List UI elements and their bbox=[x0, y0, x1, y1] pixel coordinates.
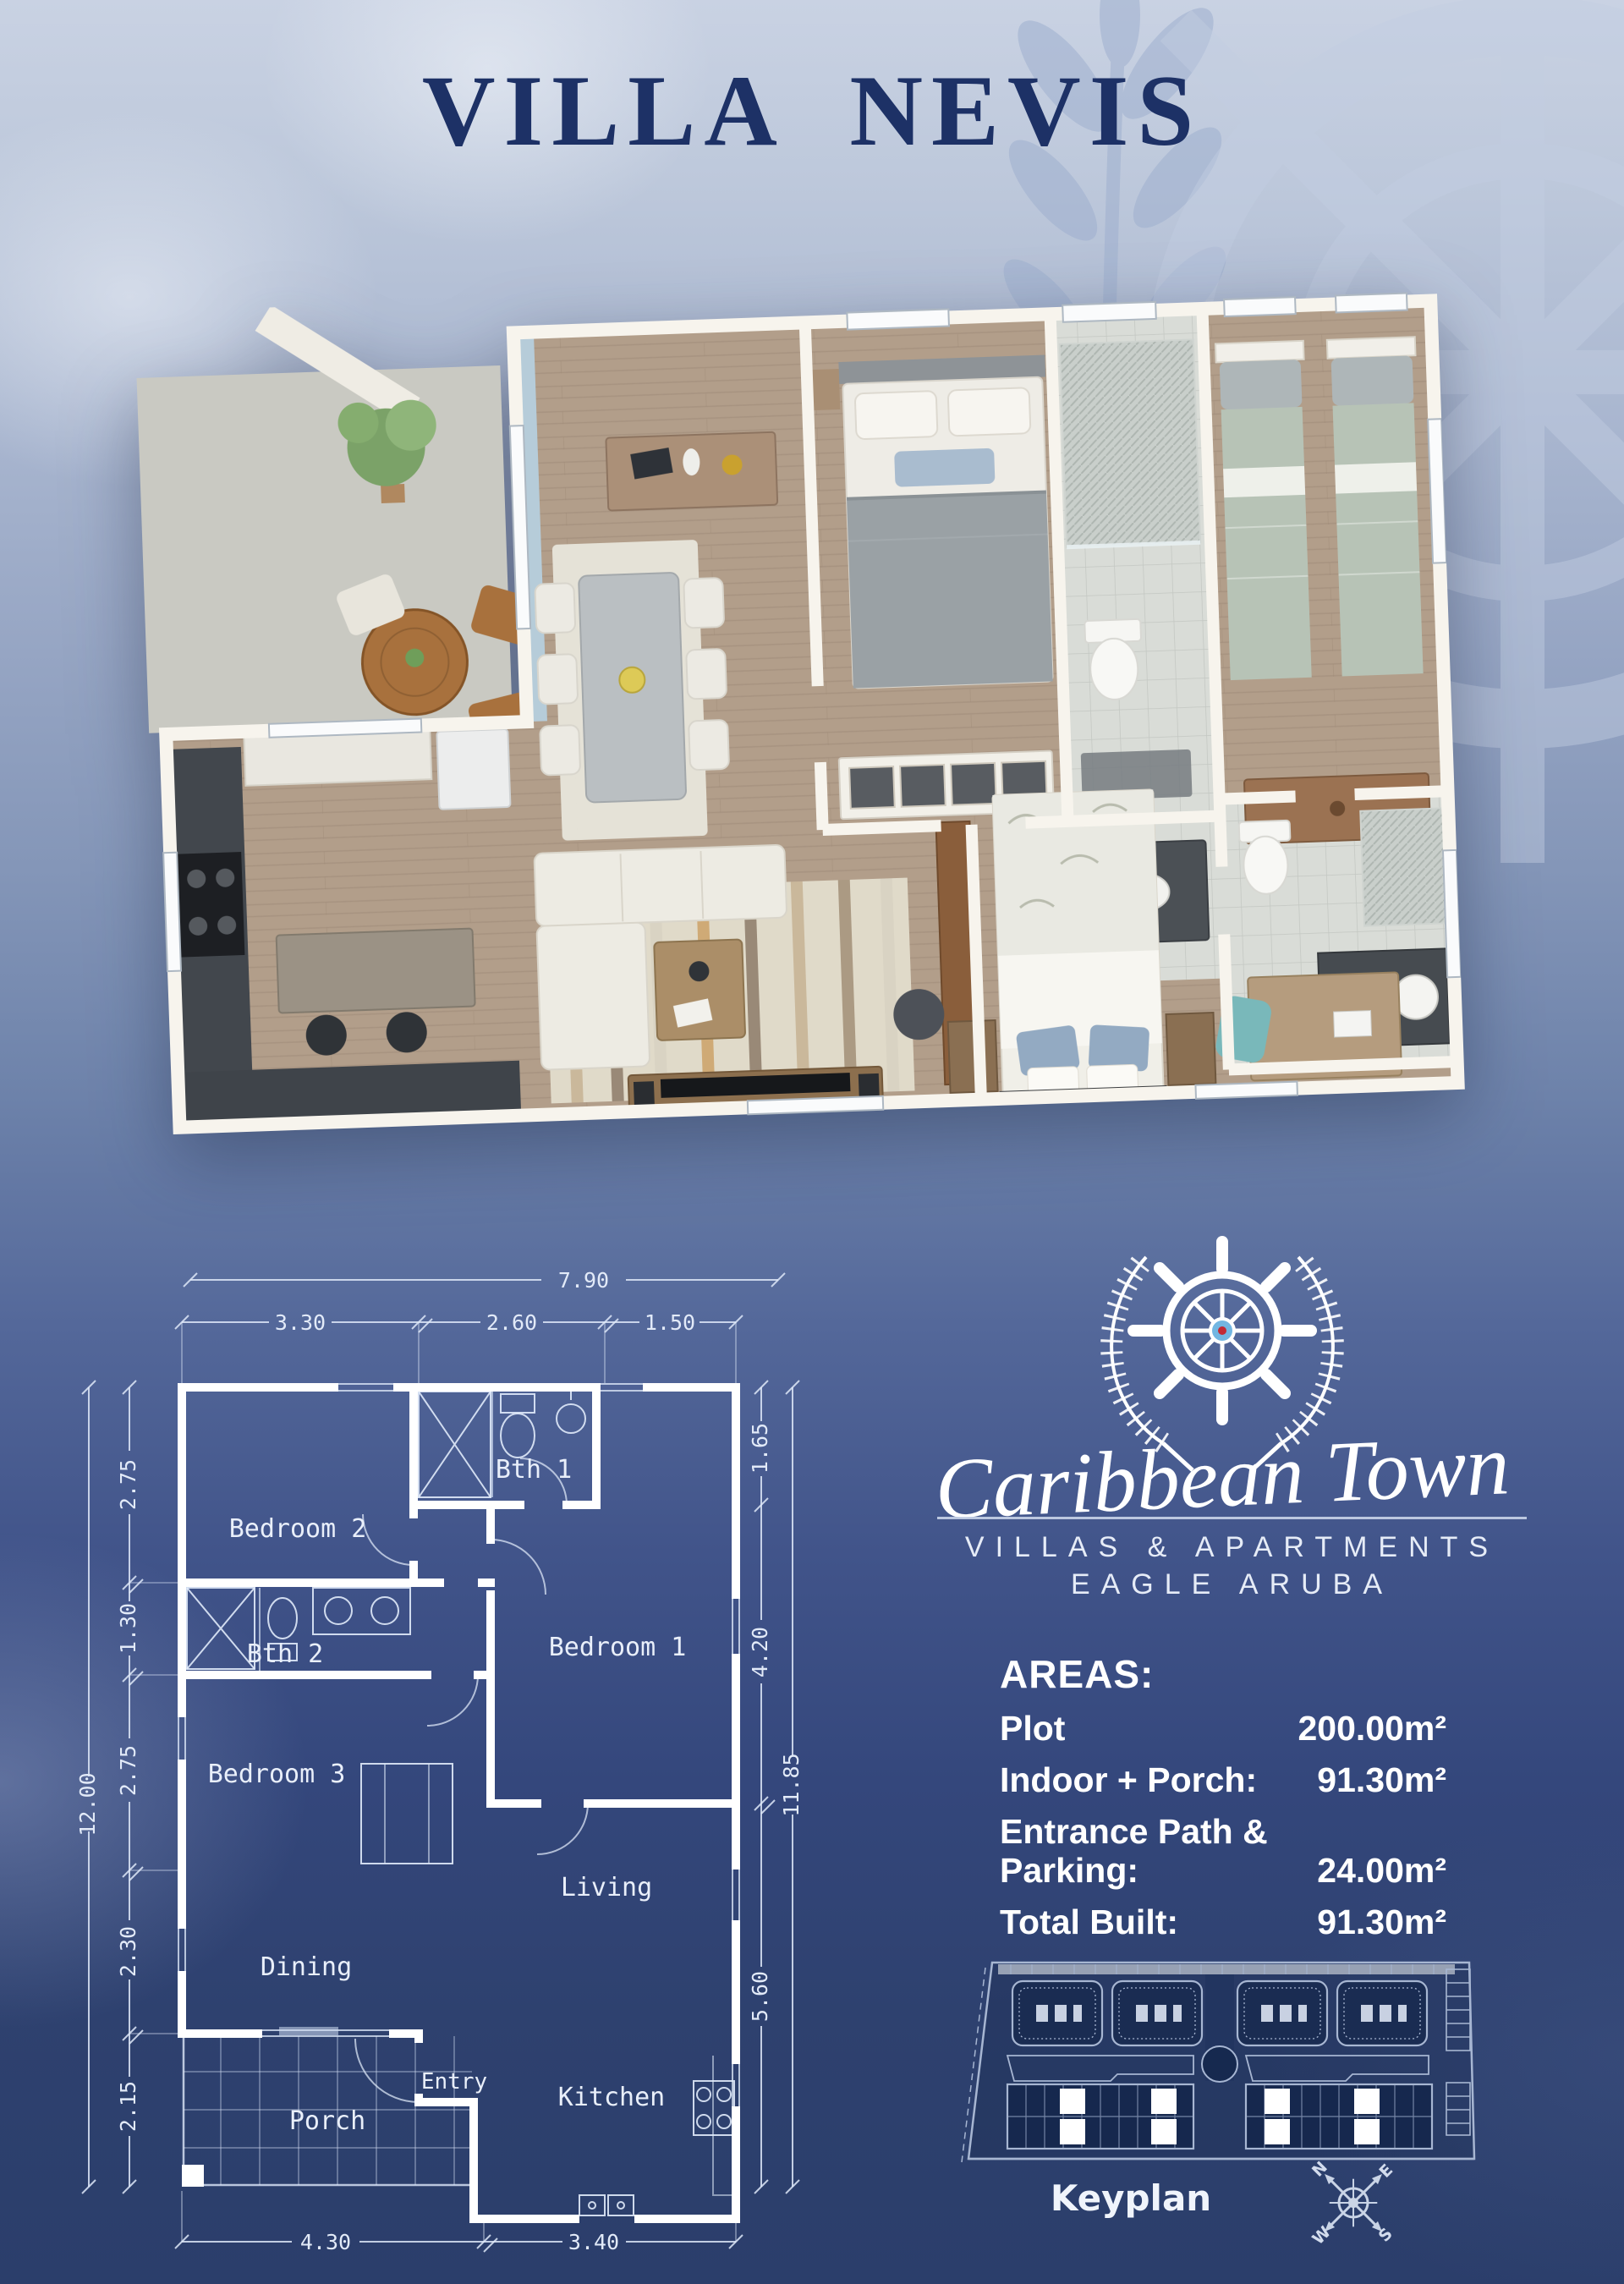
dim-right-1: 1.65 bbox=[748, 1423, 772, 1474]
dim-top-1: 3.30 bbox=[275, 1310, 326, 1335]
dim-right-total: 11.85 bbox=[779, 1753, 804, 1816]
brochure-page: VILLA NEVIS bbox=[0, 0, 1624, 2284]
twin-bed-1 bbox=[1215, 341, 1315, 680]
brand-tagline-2: EAGLE ARUBA bbox=[920, 1568, 1544, 1601]
dim-right-2: 4.20 bbox=[748, 1627, 772, 1677]
areas-label: Plot bbox=[1000, 1710, 1283, 1749]
shower bbox=[1060, 339, 1200, 546]
room-label-living: Living bbox=[561, 1873, 652, 1902]
room-label-dining: Dining bbox=[261, 1952, 352, 1982]
areas-row-plot: Plot 200.00m² bbox=[1000, 1710, 1446, 1749]
dim-left-2: 1.30 bbox=[116, 1603, 140, 1654]
dim-top-2: 2.60 bbox=[486, 1310, 537, 1335]
room-label-bth2: Bth 2 bbox=[247, 1639, 323, 1669]
dim-left-total: 12.00 bbox=[75, 1772, 100, 1836]
dim-left-1: 2.75 bbox=[116, 1459, 140, 1510]
areas-label: Entrance Path & Parking: bbox=[1000, 1813, 1283, 1891]
areas-value: 91.30m² bbox=[1317, 1903, 1446, 1942]
kitchen-island bbox=[277, 929, 475, 1013]
nightstand bbox=[1166, 1013, 1216, 1085]
dim-top-3: 1.50 bbox=[645, 1310, 695, 1335]
shower bbox=[1360, 808, 1447, 925]
room-label-porch: Porch bbox=[289, 2106, 365, 2136]
dim-left-5: 2.15 bbox=[116, 2081, 140, 2132]
dim-top-total: 7.90 bbox=[558, 1268, 609, 1293]
villa-3d-floorplan-render bbox=[128, 266, 1466, 1167]
brand-name: Caribbean Town bbox=[853, 1412, 1592, 1543]
keyplan-label: Keyplan bbox=[1046, 2177, 1215, 2219]
brand-tagline-1: VILLAS & APARTMENTS bbox=[920, 1531, 1544, 1564]
sofa-chaise bbox=[536, 922, 650, 1069]
dim-left-4: 2.30 bbox=[116, 1926, 140, 1977]
dim-bottom-2: 3.40 bbox=[568, 2230, 619, 2254]
room-label-kitchen: Kitchen bbox=[558, 2083, 665, 2112]
nightstand bbox=[810, 369, 841, 410]
areas-label: Indoor + Porch: bbox=[1000, 1761, 1283, 1800]
room-label-bedroom2: Bedroom 2 bbox=[229, 1514, 367, 1544]
room-label-bedroom1: Bedroom 1 bbox=[549, 1633, 687, 1662]
room-label-entry: Entry bbox=[421, 2069, 487, 2095]
living-room bbox=[534, 839, 947, 1117]
dim-bottom-1: 4.30 bbox=[300, 2230, 351, 2254]
coffee-table bbox=[654, 939, 745, 1040]
page-title: VILLA NEVIS bbox=[0, 52, 1624, 169]
blueprint-floorplan: 7.90 3.30 2.60 1.50 12.00 2.75 1.30 2.75… bbox=[63, 1222, 808, 2271]
twin-bed-2 bbox=[1327, 337, 1427, 676]
ship-wheel-icon bbox=[1133, 1242, 1311, 1419]
areas-value: 91.30m² bbox=[1317, 1761, 1446, 1800]
sofa bbox=[534, 845, 787, 926]
fridge bbox=[436, 729, 510, 810]
brand-divider bbox=[937, 1517, 1527, 1519]
areas-label: Total Built: bbox=[1000, 1903, 1283, 1942]
areas-section: AREAS: Plot 200.00m² Indoor + Porch: 91.… bbox=[1000, 1651, 1446, 1942]
room-label-bedroom3: Bedroom 3 bbox=[208, 1760, 346, 1789]
areas-row-total: Total Built: 91.30m² bbox=[1000, 1903, 1446, 1942]
dim-right-3: 5.60 bbox=[748, 1971, 772, 2022]
areas-heading: AREAS: bbox=[1000, 1651, 1446, 1697]
areas-row-entrance: Entrance Path & Parking: 24.00m² bbox=[1000, 1813, 1446, 1891]
areas-value: 24.00m² bbox=[1317, 1852, 1446, 1891]
areas-row-indoor: Indoor + Porch: 91.30m² bbox=[1000, 1761, 1446, 1800]
compass-rose-icon: N E S W bbox=[1301, 2150, 1406, 2255]
dim-left-3: 2.75 bbox=[116, 1745, 140, 1796]
areas-value: 200.00m² bbox=[1298, 1710, 1446, 1749]
keyplan-site-map bbox=[952, 1956, 1484, 2171]
porch-post bbox=[182, 2165, 204, 2187]
stove bbox=[177, 852, 244, 958]
room-label-bth1: Bth 1 bbox=[496, 1455, 572, 1485]
